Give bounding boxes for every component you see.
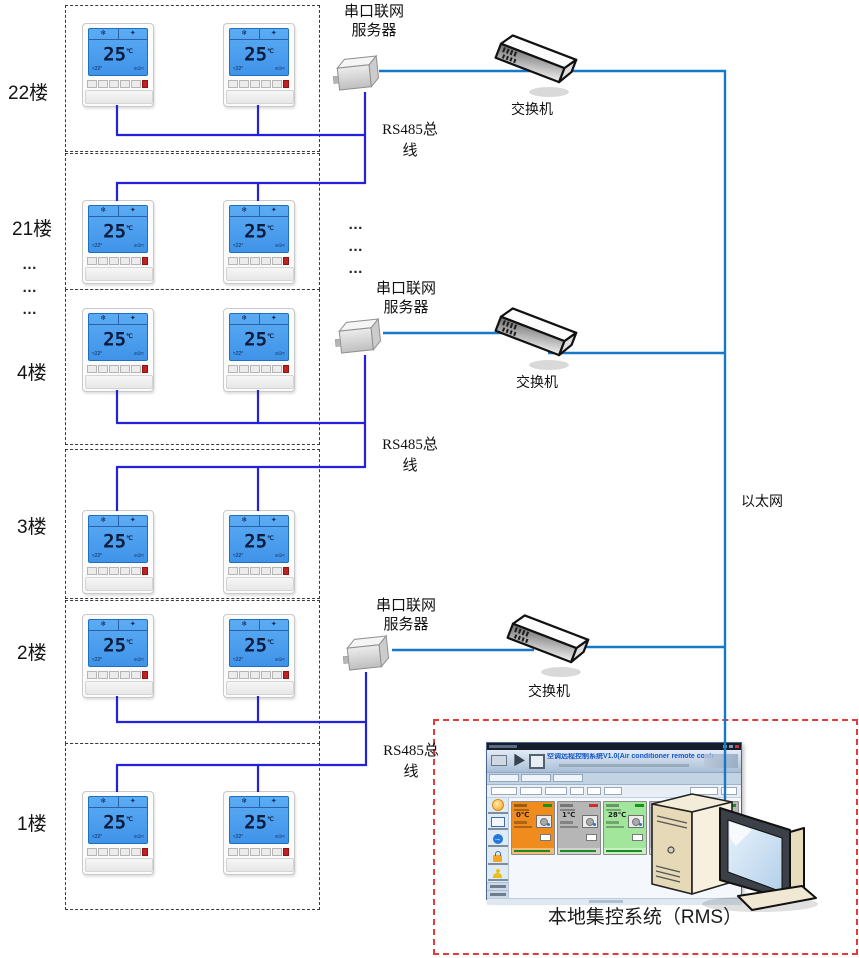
rms-caption: 本地集控系统（RMS） [500, 902, 790, 929]
computer-icon-rms [640, 788, 825, 916]
switch-label-1: 交换机 [500, 99, 564, 119]
switch-label-2: 交换机 [505, 372, 569, 392]
switch-icon-3 [495, 610, 595, 685]
rs485-bus-group3 [116, 672, 367, 792]
ethernet-label: 以太网 [741, 491, 783, 511]
server-label-1: 串口联网 服务器 [326, 3, 422, 41]
serial-server-icon-3 [342, 630, 394, 678]
switch-icon-1 [483, 30, 583, 105]
rs485-label-3: RS485总 线 [369, 741, 453, 783]
switch-label-3: 交换机 [517, 681, 581, 701]
rs485-label-2: RS485总 线 [368, 435, 452, 477]
switch-icon-2 [483, 303, 583, 378]
server-label-2: 串口联网 服务器 [358, 280, 454, 318]
serial-server-icon-1 [332, 50, 384, 98]
rs485-bus-group1 [116, 92, 366, 201]
rs485-label-1: RS485总 线 [368, 120, 452, 162]
rs485-bus-group2 [116, 355, 366, 511]
server-label-3: 串口联网 服务器 [358, 597, 454, 635]
network-topology-diagram: 22楼 21楼 4楼 3楼 2楼 1楼 … … … … … … [0, 0, 859, 958]
serial-server-icon-2 [334, 313, 386, 361]
